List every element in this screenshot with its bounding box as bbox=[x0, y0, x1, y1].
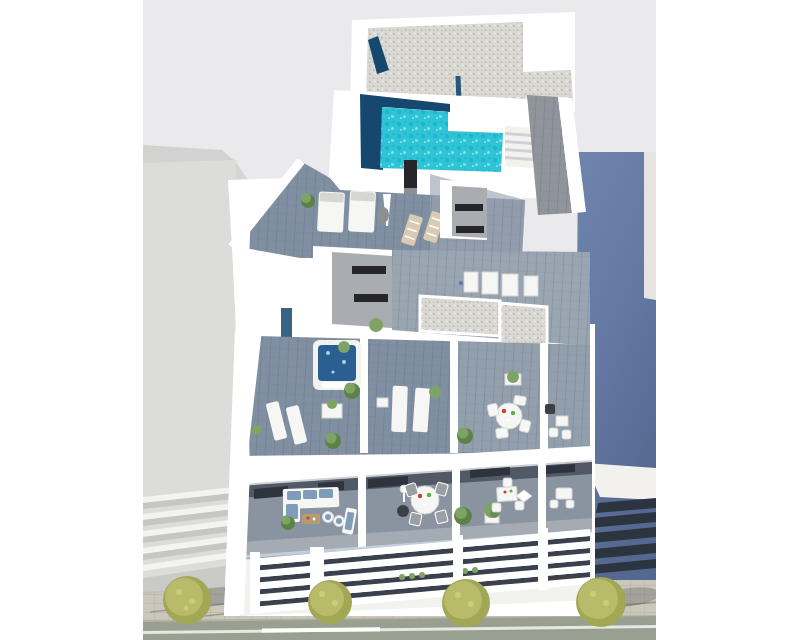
terrace-level bbox=[243, 334, 590, 457]
dark-side-table bbox=[397, 505, 409, 517]
coffee-table bbox=[302, 514, 320, 524]
deck-sculpture bbox=[377, 207, 389, 223]
terrace3-table-2 bbox=[556, 416, 568, 426]
balcony-table bbox=[497, 486, 518, 501]
terrace-partition-3 bbox=[540, 343, 548, 453]
apartment-divider-3 bbox=[538, 462, 546, 537]
street-tree-3 bbox=[442, 579, 490, 627]
pool-equipment-room bbox=[440, 180, 487, 240]
appliance-boxes bbox=[459, 272, 538, 296]
equipment-room-window-1 bbox=[455, 204, 483, 211]
terrace2-shrub-3 bbox=[429, 386, 441, 398]
pool-staircase bbox=[505, 126, 533, 168]
plate-green bbox=[511, 411, 515, 415]
street-tree-1 bbox=[163, 576, 211, 624]
core-window-2 bbox=[354, 294, 388, 302]
gray-armchair bbox=[545, 404, 555, 414]
penthouse-volume-2 bbox=[500, 303, 547, 347]
right-building-lit-strip bbox=[644, 152, 656, 300]
stair-core bbox=[313, 246, 392, 330]
right-balcony-table bbox=[556, 488, 572, 499]
street-tree-2 bbox=[308, 580, 352, 624]
corridor-plant bbox=[369, 318, 383, 332]
terrace-partition-2 bbox=[450, 340, 458, 453]
jacuzzi bbox=[313, 340, 361, 390]
terrace2-shrub-1 bbox=[338, 341, 350, 353]
building-render bbox=[0, 0, 800, 640]
apartment-divider-1 bbox=[358, 470, 366, 548]
street-tree-4 bbox=[576, 577, 626, 627]
equipment-room-window-2 bbox=[456, 226, 484, 233]
render-canvas bbox=[0, 0, 800, 640]
blue-logo-dot bbox=[459, 281, 463, 285]
plate-red bbox=[502, 409, 506, 413]
round-dining-table bbox=[496, 403, 522, 429]
double-lounger-2 bbox=[348, 190, 376, 232]
facade-pillar-1 bbox=[250, 552, 260, 614]
terrace1-shrub-small bbox=[252, 425, 262, 435]
apartment-divider-2 bbox=[452, 465, 460, 543]
core-window-1 bbox=[352, 266, 386, 274]
double-lounger-1 bbox=[317, 191, 345, 232]
terrace-partition-1 bbox=[360, 337, 368, 453]
penthouse-volume-1 bbox=[420, 296, 500, 336]
facade-pillar-4 bbox=[538, 528, 548, 590]
terrace2-side-table bbox=[377, 398, 388, 407]
